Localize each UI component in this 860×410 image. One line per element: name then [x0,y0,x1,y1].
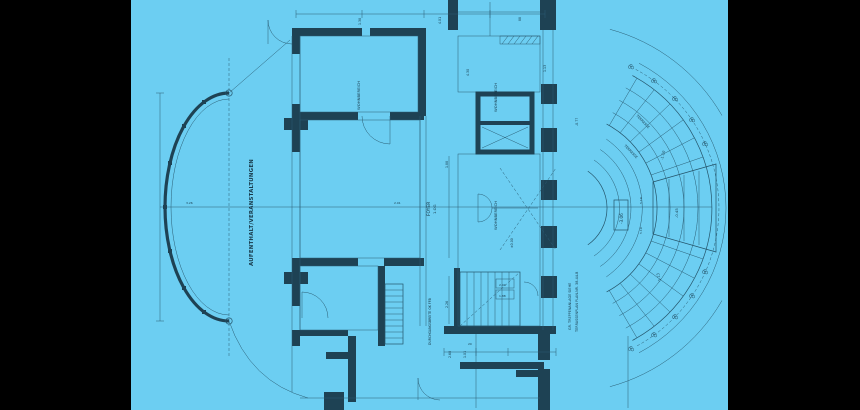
dim-2: 4.30 [466,69,470,76]
dim-15: 2.04 [499,283,506,287]
stair-hall [460,272,520,326]
room-label-top-right: WOHNBEREICH [493,83,498,112]
blueprint-paper: AUFENTHALT/VERANSTALTUNGEN WOHNBEREICH W… [131,0,728,410]
elevation-box-value: -3.06 [619,213,624,224]
elevator-shaft [478,94,532,152]
dim-12: 88 [518,17,522,21]
dim-11: 1.13 [543,65,547,72]
dim-6: 5.19 [639,227,643,234]
dim-10: 4.01 [438,17,442,24]
floorplan-drawing: AUFENTHALT/VERANSTALTUNGEN WOHNBEREICH W… [131,0,728,410]
dim-9: 2.01 [394,201,401,205]
terrace-landing [653,164,716,252]
plan-labels: AUFENTHALT/VERANSTALTUNGEN WOHNBEREICH W… [186,17,679,358]
dim-4: 2.26 [445,301,449,308]
room-label-top-left: WOHNBEREICH [356,81,361,110]
terrace-step-ticks [609,78,703,338]
corridor-note: DURCHGANGSBREITE OK FFB [428,298,432,345]
terrace-note-1: GR. TREPPENANLAGE SIEHE [568,283,572,330]
elevation-small: -0.77 [575,118,579,126]
elevation-zero: ±0.00 [510,238,514,248]
dimension-lines [156,10,556,356]
screenshot-stage: AUFENTHALT/VERANSTALTUNGEN WOHNBEREICH W… [0,0,860,410]
letterbox-left [0,0,131,410]
room-label-mid-right: WOHNBEREICH [493,201,498,230]
dim-7: 2.68 [448,351,452,358]
terrace-arcs [588,29,726,386]
terrace-note-2: TERRASSENPLAN PLAN-NR. 38-44-B [575,271,579,333]
dim-3: 1.88 [445,161,449,168]
dim-5: 5.19 [639,197,643,204]
room-label-main: AUFENTHALT/VERANSTALTUNGEN [249,159,255,266]
dim-14: 3.26 [186,201,193,205]
stair-left [385,284,403,344]
hatched-wall-strip [500,36,540,44]
foyer-label-2: 1.OG [432,204,437,214]
dim-16: 1.88 [499,294,506,298]
bay-window-wall [163,20,308,398]
structural-walls [284,0,557,410]
elevation-upper: -1.10 [660,150,666,161]
elevation-lower: -1.13 [656,273,662,283]
dim-8: 1.01 [463,351,467,358]
elevation-landing: -0.45 [674,208,679,218]
dim-1: 1.38 [358,18,362,25]
dim-13: 20 [468,342,472,346]
letterbox-right [728,0,860,410]
